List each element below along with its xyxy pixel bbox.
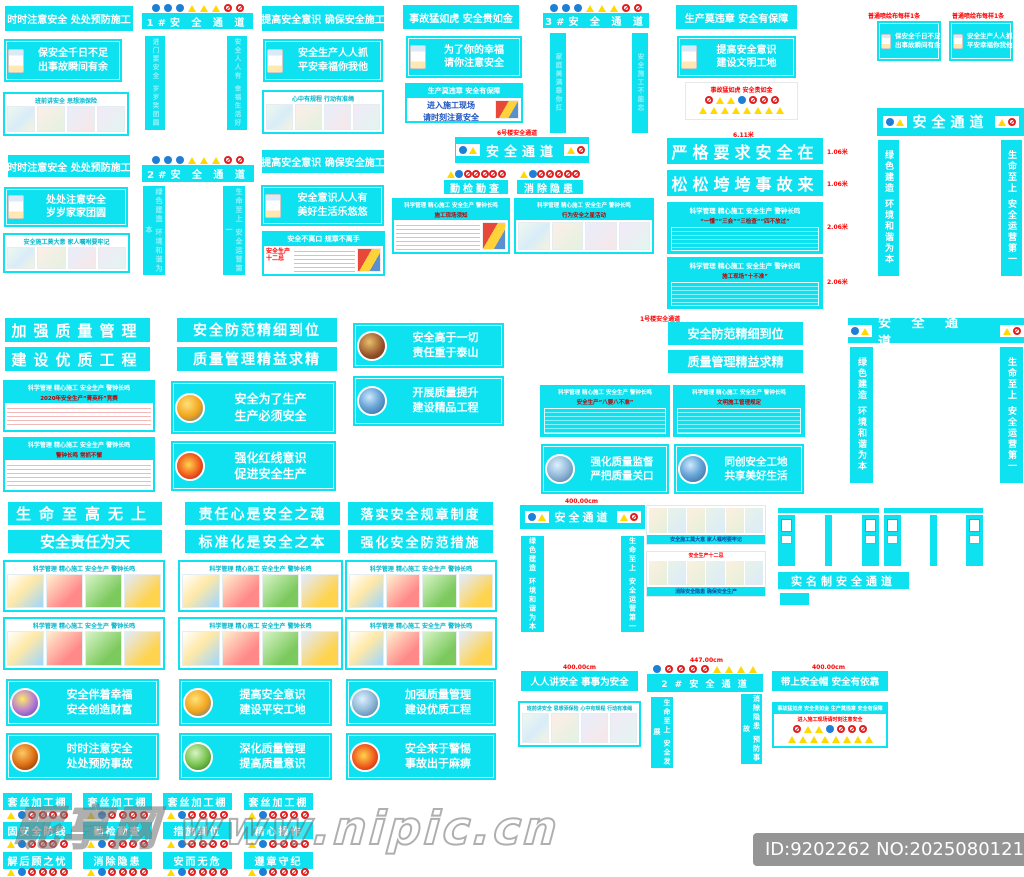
prohibition-sign-icon [555, 170, 563, 178]
panel-tag: 安全生产十二忌 [647, 552, 765, 559]
safety-sign-strip [776, 724, 884, 734]
cartoon-artwork [518, 222, 650, 250]
warning-sign-icon [188, 157, 196, 164]
notice-card-icon [887, 535, 898, 544]
mandatory-sign-icon [886, 118, 894, 126]
gantry-n-left-post: 绿色建造 环境和谐为本 [521, 536, 544, 632]
info-panel-2: 安全生产十二忌 消除安全隐患 确保安全生产 [646, 551, 766, 597]
panel-subtitle: 进入施工现场请时刻注意安全 [776, 716, 884, 723]
banner-line: 共享美好生活 [725, 470, 788, 482]
gantry-2b-left-post: 生命至上 安全发展 [651, 697, 673, 768]
turnstile-frame-1 [778, 508, 879, 566]
warning-sign-icon [1003, 328, 1011, 335]
banner-line: 保安全千日不足 [38, 48, 108, 59]
poster-panel-c3: 生产莫违章 安全有保障 进入施工现场请时刻注意安全 [405, 83, 523, 123]
print-note-label: 普通喷绘布每样1条 [868, 11, 920, 20]
gate-post [825, 515, 832, 566]
warning-sign-icon [212, 5, 220, 12]
poster-panel-f3: 安全不离口 规章不离手 安全生产十二忌 [262, 231, 385, 276]
slogan-banner-m1: 生命至高无上 [8, 502, 162, 525]
framed-banner-w3: 加强质量管理建设优质工程 [345, 678, 497, 727]
mandatory-sign-icon [164, 156, 172, 164]
slogan-banner-o1: 落实安全规章制度 [348, 502, 493, 525]
cartoon-artwork [182, 574, 339, 608]
prohibition-sign-icon [140, 868, 148, 876]
warning-sign-icon [586, 5, 594, 12]
banner-line: 提高安全意识 [240, 688, 306, 701]
banner-line: 同创安全工地 [725, 456, 788, 468]
safety-sign-strip [543, 3, 649, 13]
panel-title: 科学管理 精心施工 安全生产 警钟长鸣 [675, 387, 803, 397]
banner-line: 岁岁家家团圆 [46, 208, 106, 219]
poster-photo-icon [410, 45, 426, 69]
warning-sign-icon [743, 107, 751, 114]
prohibition-sign-icon [634, 4, 642, 12]
gate-post [930, 515, 937, 566]
poster-panel-e3: 安全施工莫大意 家人嘱咐要牢记 [3, 233, 130, 273]
cartoon-artwork [7, 631, 161, 666]
prohibition-sign-icon [677, 665, 685, 673]
prohibition-sign-icon [464, 170, 472, 178]
gantry-r2-label: 安 全 通 道 [878, 312, 994, 350]
framed-banner-l3: 强化质量监督严把质量关口 [540, 443, 670, 495]
banner-qinjian: 勤检勤查 [444, 180, 508, 194]
dimension-label: 6.11米 [733, 130, 754, 139]
notice-card-icon [865, 519, 876, 532]
prohibition-sign-icon [119, 868, 127, 876]
helmet-photo-icon [183, 688, 213, 718]
turnstile-frame-2 [884, 508, 983, 566]
safety-sign-strip [848, 325, 872, 337]
poster-panel-l2: 科学管理 精心施工 安全生产 警钟长鸣 文明施工管理规定 [673, 385, 805, 437]
warning-sign-icon [167, 869, 175, 876]
notice-card-icon [887, 519, 898, 532]
gantry1-right-post: 安全人人有 幸福生活好 [227, 36, 247, 130]
panel-title: 班前讲安全 思想添保险 心中有规程 行动有准绳 [522, 705, 637, 712]
mandatory-sign-icon [455, 170, 463, 178]
prohibition-sign-icon [665, 665, 673, 673]
safety-sign-strip [883, 116, 907, 128]
banner-line: 时时注意安全 [67, 742, 133, 755]
poster-panel-g2: 科学管理 精心施工 安全生产 警钟长鸣 行为安全之星活动 [514, 198, 654, 254]
warning-sign-icon [843, 736, 851, 743]
gantry3-left-post: 家庭美满靠你扛 [550, 33, 566, 133]
banner-line: 强化质量监督 [591, 456, 654, 468]
warning-sign-icon [710, 107, 718, 114]
slogan-banner-j1: 安全防范精细到位 [177, 318, 337, 342]
prohibition-sign-icon [572, 170, 580, 178]
banner-line: 安全为了生产 [234, 392, 306, 406]
warning-sign-icon [721, 107, 729, 114]
prohibition-sign-icon [481, 170, 489, 178]
mandatory-sign-icon [653, 665, 661, 673]
warning-sign-icon [861, 328, 869, 335]
banner-line: 保安全千日不足 [895, 32, 941, 40]
warning-sign-icon [212, 157, 220, 164]
prohibition-sign-icon [793, 725, 801, 733]
panel-header: 安全不离口 规章不离手 [264, 233, 383, 245]
poster-photo-icon [265, 194, 281, 218]
mandatory-sign-icon [574, 4, 582, 12]
warning-sign-icon [200, 157, 208, 164]
gantry-r1-right-post: 生命至上 安全运营第一 [1001, 140, 1022, 276]
gantry2-right-post: 生命至上 安全运营第一 [223, 186, 245, 275]
poster-panel-a3: 班前讲安全 思想添保险 [3, 92, 129, 136]
panel-title: 科学管理 精心施工 安全生产 警钟长鸣 [182, 621, 339, 630]
fine-print-text [671, 282, 819, 306]
slogan-banner-l2: 质量管理精益求精 [668, 350, 803, 373]
banner-line: 出事故瞬间有余 [895, 41, 941, 49]
poster-panel-g1: 科学管理 精心施工 安全生产 警钟长鸣 施工现场须知 [392, 198, 510, 254]
prohibition-sign-icon [705, 96, 713, 104]
dimension-label: 400.00cm [812, 664, 845, 671]
warning-sign-icon [87, 869, 95, 876]
mandatory-sign-icon [826, 725, 834, 733]
warning-sign-icon [804, 726, 812, 733]
safety-sign-strip [688, 95, 795, 105]
banner-line: 处处预防事故 [67, 757, 133, 770]
prohibition-sign-icon [859, 725, 867, 733]
cartoon-artwork [7, 574, 161, 608]
workers-photo-icon [357, 386, 387, 416]
warning-sign-icon [865, 736, 873, 743]
framed-banner-topright-2: 安全生产人人抓平安幸福你我他 [948, 20, 1014, 62]
warning-sign-icon [567, 147, 575, 154]
prohibition-sign-icon [622, 4, 630, 12]
warning-sign-icon [737, 666, 745, 673]
warning-sign-icon [765, 107, 773, 114]
prohibition-sign-icon [577, 146, 585, 154]
panel-title: 科学管理 精心施工 安全生产 警钟长鸣 [7, 621, 161, 630]
panel-caption: 消除安全隐患 确保安全生产 [647, 587, 765, 596]
fine-print-text [7, 405, 151, 428]
warning-sign-icon [727, 97, 735, 104]
warning-sign-icon [248, 869, 256, 876]
fine-print-text [7, 462, 151, 488]
location-note-label: 1号楼安全通道 [640, 314, 680, 323]
slogan-banner-m2: 安全责任为天 [8, 530, 162, 553]
cartoon-panel-n2: 科学管理 精心施工 安全生产 警钟长鸣 [178, 617, 343, 670]
safety-sign-strip [142, 3, 253, 13]
slogan-banner-l1: 安全防范精细到位 [668, 322, 803, 345]
prohibition-sign-icon [564, 170, 572, 178]
poster-photo-icon [8, 49, 24, 73]
prohibition-sign-icon [236, 156, 244, 164]
mandatory-sign-icon [259, 868, 267, 876]
poster-panel-q2: 事故猛如虎 安全贵如金 生产莫违章 安全有保障 进入施工现场请时刻注意安全 [772, 702, 888, 748]
slogan-banner-c1: 事故猛如虎 安全贵如金 [403, 5, 519, 29]
banner-xiaochu: 消除隐患 [517, 180, 583, 194]
warning-sign-icon [776, 107, 784, 114]
mandatory-sign-icon [176, 156, 184, 164]
gantry2-left-post: 绿色建造 环境和谐为本 [143, 186, 165, 275]
cartoon-artwork [7, 106, 125, 132]
mini-sign [780, 593, 809, 605]
slogan-banner-a1: 时时注意安全 处处预防施工 [5, 6, 133, 31]
gantry-n-right-post: 生命至上 安全运营第一 [621, 536, 644, 632]
cartoon-panel-o2: 科学管理 精心施工 安全生产 警钟长鸣 [345, 617, 497, 670]
prohibition-sign-icon [108, 868, 116, 876]
panel-title: 事故猛如虎 安全贵如金 [688, 85, 795, 94]
warning-sign-icon [598, 5, 606, 12]
gantry-n-label: 安全通道 [555, 509, 611, 525]
safety-sign-strip [456, 144, 480, 156]
safety-sign-strip [525, 511, 549, 523]
framed-banner-j4: 强化红线意识促进安全生产 [170, 440, 337, 492]
banner-line: 平安幸福你我他 [967, 41, 1013, 49]
dimension-label: 2.06米 [827, 222, 848, 231]
prohibition-sign-icon [39, 868, 47, 876]
banner-line: 安全创造财富 [67, 703, 133, 716]
safety-sign-strip [776, 735, 884, 744]
prohibition-sign-icon [689, 665, 697, 673]
prohibition-sign-icon [537, 170, 545, 178]
poster-panel-l1: 科学管理 精心施工 安全生产 警钟长鸣 安全生产“八要八不准” [540, 385, 670, 437]
worker-cartoon-icon [482, 222, 506, 250]
banner-line: 严把质量关口 [591, 470, 654, 482]
workers-photo-icon [678, 454, 708, 484]
gantry-n-beam: 安全通道 [520, 505, 645, 529]
gate-post [884, 515, 901, 566]
mandatory-sign-icon [550, 4, 558, 12]
greenery-photo-icon [183, 742, 213, 772]
mandatory-sign-icon [18, 868, 26, 876]
prohibition-sign-icon [1008, 118, 1016, 126]
poster-panel-q1: 班前讲安全 思想添保险 心中有规程 行动有准绳 [518, 701, 641, 747]
framed-banner-w2: 提高安全意识建设平安工地 [178, 678, 333, 727]
fine-print-text [677, 408, 801, 434]
warning-sign-icon [799, 736, 807, 743]
banner-line: 提高安全意识 [717, 45, 777, 56]
safety-sign-strip [688, 106, 795, 115]
slogan-banner-f1: 提高安全意识 确保安全施工 [262, 150, 384, 173]
gantry3-beam: 3#安 全 通 道 [543, 3, 649, 28]
cartoon-artwork [349, 574, 493, 608]
prohibition-sign-icon [837, 725, 845, 733]
gantry-r2-right-post: 生命至上 安全运营第一 [1000, 347, 1023, 483]
warning-sign-icon [896, 119, 904, 126]
safety-sign-strip [3, 871, 72, 877]
mandatory-sign-icon [851, 327, 859, 335]
panel-subtitle: 文明施工管理规定 [675, 398, 803, 406]
fine-print-text [671, 227, 819, 251]
mandatory-sign-icon [164, 4, 172, 12]
gantry1-left-post: 进门要安全 岁岁笑团圆 [145, 36, 165, 130]
banner-line: 安全来于警惕 [405, 742, 471, 755]
gantry-r2-beam: 安 全 通 道 [848, 318, 1024, 343]
slogan-banner-i2: 建设优质工程 [5, 347, 150, 371]
warning-sign-icon [188, 5, 196, 12]
safety-sign-strip [564, 144, 588, 156]
banner-line: 安全高于一切 [413, 331, 479, 344]
safety-sign-strip [617, 511, 641, 523]
gantry-2b-label: 2 # 安 全 通 道 [647, 674, 763, 692]
banner-line: 安全伴着幸福 [67, 688, 133, 701]
dimension-label: 400.00cm [565, 498, 598, 505]
safety-sign-strip [517, 168, 583, 179]
banner-line: 请你注意安全 [444, 58, 504, 69]
framed-banner-a2: 保安全千日不足出事故瞬间有余 [3, 38, 123, 83]
mandatory-sign-icon [529, 170, 537, 178]
prohibition-sign-icon [60, 868, 68, 876]
framed-banner-k1: 安全高于一切责任重于泰山 [352, 322, 505, 369]
poster-panel-h1: 科学管理 精心施工 安全生产 警钟长鸣 “一懂”“三会”“三检查”“四不放过” [667, 202, 823, 254]
notice-card-icon [781, 535, 792, 544]
gate-post [966, 515, 983, 566]
warning-sign-icon [610, 5, 618, 12]
prohibition-sign-icon [472, 170, 480, 178]
dimension-label: 400.00cm [563, 664, 596, 671]
safety-sign-strip [444, 168, 508, 179]
gantry3-label: 3#安 全 通 道 [543, 13, 649, 28]
mandatory-sign-icon [738, 96, 746, 104]
framed-banner-topright-1: 保安全千日不足出事故瞬间有余 [876, 20, 942, 62]
banner-line: 为了你的幸福 [444, 45, 504, 56]
cartoon-panel-o1: 科学管理 精心施工 安全生产 警钟长鸣 [345, 560, 497, 612]
prohibition-sign-icon [49, 868, 57, 876]
panel-title: 科学管理 精心施工 安全生产 警钟长鸣 [669, 259, 821, 271]
site-watermark: 昵享网 www.nipic.cn [12, 792, 563, 858]
warning-sign-icon [732, 107, 740, 114]
panel-title: 科学管理 精心施工 安全生产 警钟长鸣 [7, 564, 161, 573]
safety-sign-strip [647, 664, 763, 674]
print-note-label: 普通喷绘布每样1条 [952, 11, 1004, 20]
photo-grid [647, 506, 765, 535]
gantry-2b-right-post: 消除隐患 预防事故 [741, 694, 762, 764]
framed-banner-d2: 提高安全意识建设文明工地 [676, 35, 797, 79]
notice-card-icon [969, 535, 980, 544]
banner-line: 建设优质工程 [405, 703, 471, 716]
cartoon-panel-m2: 科学管理 精心施工 安全生产 警钟长鸣 [3, 617, 165, 670]
banner-line: 建设精品工程 [413, 401, 479, 414]
panel-caption: 安全施工莫大意 家人嘱咐要牢记 [647, 535, 765, 544]
banner-line: 生产必须安全 [234, 409, 306, 423]
prohibition-sign-icon [848, 725, 856, 733]
prohibition-sign-icon [220, 868, 228, 876]
panel-title: 班前讲安全 思想添保险 [7, 96, 125, 105]
safety-sign-strip [1000, 325, 1024, 337]
prohibition-sign-icon [498, 170, 506, 178]
warning-sign-icon [821, 736, 829, 743]
notice-card-icon [865, 535, 876, 544]
banner-line: 提高质量意识 [240, 757, 306, 770]
gate-post [862, 515, 879, 566]
worker-cartoon-icon [495, 100, 519, 119]
warning-sign-icon [713, 666, 721, 673]
panel-subtitle: 2020年安全生产“菁英杯”竞赛 [5, 394, 153, 402]
safety-sign-strip [142, 155, 254, 165]
safety-sign-strip [995, 116, 1019, 128]
gantry-2b-beam: 2 # 安 全 通 道 [647, 664, 763, 692]
framed-banner-f2: 安全意识人人有美好生活乐悠悠 [260, 184, 385, 227]
panel-subtitle: 安全生产“八要八不准” [542, 398, 668, 406]
slogan-banner-n2: 标准化是安全之本 [185, 530, 340, 553]
panel-line: 进入施工现场 [427, 101, 475, 110]
banner-line: 事故出于麻痹 [405, 757, 471, 770]
panel-title: 心中有规程 行动有准绳 [266, 94, 380, 103]
warning-sign-icon [447, 171, 455, 178]
mandatory-sign-icon [459, 146, 467, 154]
prohibition-sign-icon [236, 4, 244, 12]
gantry2-label: 2#安 全 通 道 [142, 165, 254, 182]
gantry6-beam: 安全通道 [455, 137, 589, 163]
cartoon-artwork [7, 247, 126, 269]
panel-subtitle: 施工现场“十不准” [669, 272, 821, 280]
prohibition-sign-icon [129, 868, 137, 876]
framed-banner-l4: 同创安全工地共享美好生活 [673, 443, 805, 495]
warning-sign-icon [832, 736, 840, 743]
banner-line: 加强质量管理 [405, 688, 471, 701]
mandatory-sign-icon [176, 4, 184, 12]
prohibition-sign-icon [269, 868, 277, 876]
panel-subtitle: “一懂”“三会”“三检查”“四不放过” [669, 217, 821, 225]
warning-sign-icon [788, 736, 796, 743]
prohibition-sign-icon [28, 868, 36, 876]
flowers-photo-icon [10, 688, 40, 718]
banner-line: 处处注意安全 [46, 195, 106, 206]
prohibition-sign-icon [199, 868, 207, 876]
mandatory-sign-icon [152, 4, 160, 12]
panel-side-label: 安全生产十二忌 [266, 248, 292, 272]
panel-subtitle: 行为安全之星活动 [516, 211, 652, 219]
location-note-label: 6号楼安全通道 [497, 128, 537, 137]
framed-banner-w1: 安全伴着幸福安全创造财富 [5, 678, 160, 727]
slogan-banner-h2: 松松垮垮事故来 [667, 170, 823, 196]
id-watermark: ID:9202262 NO:20250801211338076102 [753, 833, 1024, 866]
gantry-r1-beam: 安全通道 [877, 108, 1024, 136]
panel-subtitle: 施工现场须知 [394, 211, 508, 219]
poster-photo-icon [681, 45, 697, 69]
panel-title: 科学管理 精心施工 安全生产 警钟长鸣 [349, 621, 493, 630]
poster-panel-b3: 心中有规程 行动有准绳 [262, 90, 384, 134]
mandatory-sign-icon [178, 868, 186, 876]
cartoon-artwork [349, 631, 493, 666]
panel-title: 科学管理 精心施工 安全生产 警钟长鸣 [542, 387, 668, 397]
cartoon-panel-n1: 科学管理 精心施工 安全生产 警钟长鸣 [178, 560, 343, 612]
prohibition-sign-icon [301, 868, 309, 876]
warning-sign-icon [810, 736, 818, 743]
prohibition-sign-icon [546, 170, 554, 178]
banner-line: 促进安全生产 [234, 467, 306, 481]
cartoon-artwork [266, 104, 380, 130]
prohibition-sign-icon [290, 868, 298, 876]
building-photo-icon [350, 688, 380, 718]
warning-sign-icon [854, 736, 862, 743]
cartoon-artwork [182, 631, 339, 666]
panel-title: 科学管理 精心施工 安全生产 警钟长鸣 [5, 382, 153, 393]
gantry-r2-left-post: 绿色建造 环境和谐为本 [850, 347, 873, 483]
warning-sign-icon [815, 726, 823, 733]
gantry6-label: 安全通道 [486, 141, 558, 160]
slogan-banner-h1: 严格要求安全在 [667, 138, 823, 164]
framed-banner-e2: 处处注意安全岁岁家家团圆 [3, 186, 129, 228]
mandatory-sign-icon [562, 4, 570, 12]
banner-line: 建设平安工地 [240, 703, 306, 716]
panel-title: 安全施工莫大意 家人嘱咐要牢记 [7, 237, 126, 246]
warning-sign-icon [699, 107, 707, 114]
framed-banner-w4: 时时注意安全处处预防事故 [5, 732, 160, 781]
panel-title: 科学管理 精心施工 安全生产 警钟长鸣 [394, 200, 508, 210]
mandatory-sign-icon [152, 156, 160, 164]
poster-photo-icon [8, 195, 24, 219]
framed-banner-b2: 安全生产人人抓平安幸福你我他 [262, 38, 384, 83]
gantry2-beam: 2#安 全 通 道 [142, 155, 254, 182]
banner-line: 建设文明工地 [717, 58, 777, 69]
banner-line: 责任重于泰山 [413, 346, 479, 359]
prohibition-sign-icon [224, 156, 232, 164]
notice-card-icon [781, 519, 792, 532]
prohibition-sign-icon [489, 170, 497, 178]
